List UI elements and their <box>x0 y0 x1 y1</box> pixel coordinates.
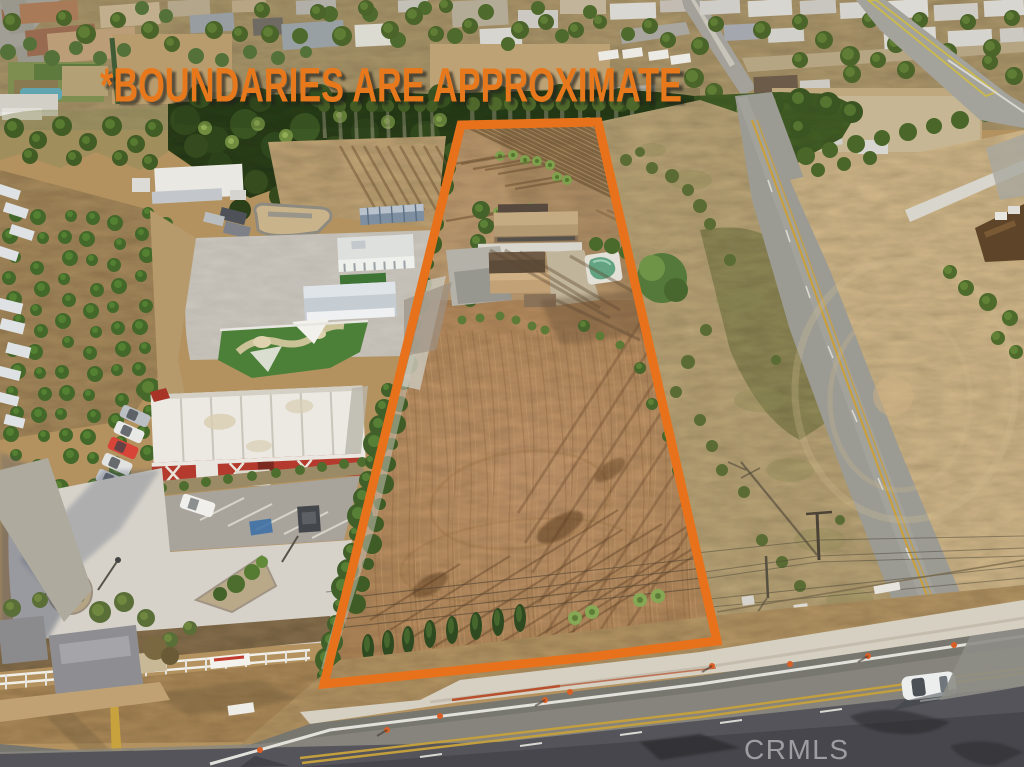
svg-text:CRMLS: CRMLS <box>744 734 850 765</box>
svg-text:*BOUNDARIES ARE APPROXIMATE: *BOUNDARIES ARE APPROXIMATE <box>100 60 682 113</box>
